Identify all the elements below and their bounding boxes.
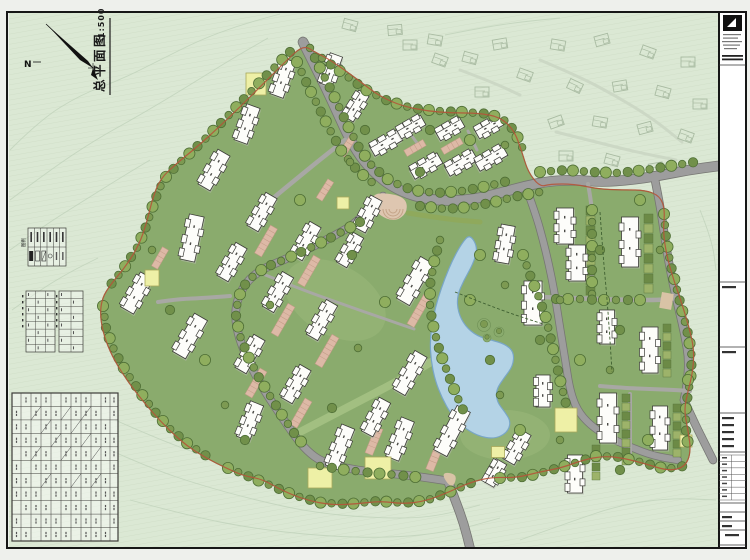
titleblock-label bbox=[722, 424, 734, 426]
drawing-sheet: 总平面图 1:500 N 图例 bbox=[0, 0, 750, 560]
titleblock-text-line bbox=[723, 45, 740, 46]
building bbox=[534, 375, 553, 409]
building bbox=[650, 406, 670, 452]
public-building bbox=[145, 270, 159, 286]
title-block bbox=[719, 12, 746, 548]
legend-title: 图例 bbox=[20, 238, 27, 247]
titleblock-label bbox=[722, 417, 734, 419]
legend-table bbox=[28, 228, 66, 266]
titleblock-label bbox=[722, 431, 734, 433]
building bbox=[640, 327, 661, 375]
titleblock-text-line bbox=[723, 38, 738, 39]
stat-table-b bbox=[56, 291, 83, 352]
titleblock-text-line bbox=[723, 34, 741, 35]
titleblock-label bbox=[722, 525, 732, 527]
titleblock-label bbox=[722, 438, 734, 440]
indicator-table bbox=[12, 393, 118, 541]
building bbox=[619, 217, 641, 269]
titleblock-text-line bbox=[722, 59, 743, 61]
titleblock-label bbox=[722, 445, 734, 447]
titleblock-text-line bbox=[724, 48, 737, 49]
north-label: N bbox=[24, 60, 32, 70]
titleblock-label bbox=[722, 351, 736, 353]
titleblock-label bbox=[725, 534, 739, 536]
public-building bbox=[492, 447, 505, 458]
building bbox=[597, 310, 617, 346]
titleblock-label bbox=[722, 516, 732, 518]
building bbox=[597, 393, 619, 445]
public-building bbox=[555, 408, 577, 432]
public-building bbox=[337, 197, 349, 209]
building bbox=[566, 245, 588, 283]
titleblock-text-line bbox=[722, 41, 742, 42]
titleblock-text-line bbox=[722, 55, 743, 57]
stat-table-a bbox=[22, 291, 55, 352]
drawing-title: 总平面图 bbox=[92, 32, 107, 92]
company-logo bbox=[723, 15, 742, 31]
site-plan: 总平面图 1:500 N 图例 bbox=[0, 0, 750, 560]
building bbox=[554, 208, 576, 246]
titleblock-label bbox=[722, 286, 736, 288]
